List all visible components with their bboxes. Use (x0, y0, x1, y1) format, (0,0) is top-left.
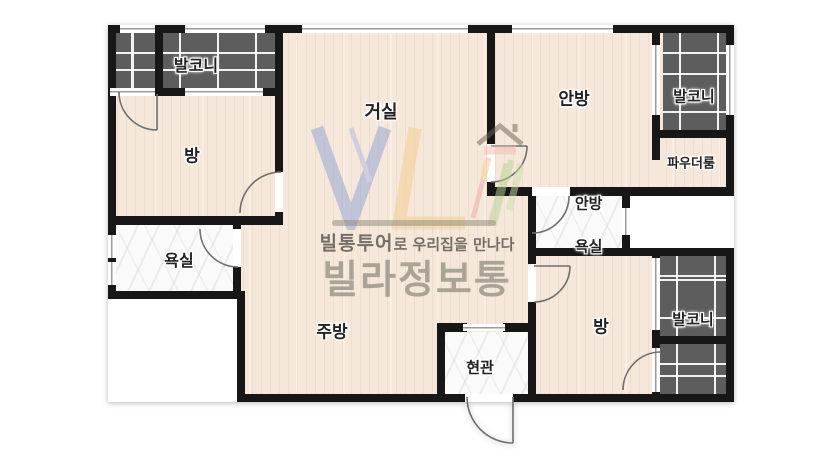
window (652, 258, 660, 330)
label-room-bottom-right: 방 (593, 313, 609, 338)
label-master-bedroom: 안방 (558, 85, 589, 110)
window (652, 348, 660, 392)
door-opening (528, 264, 536, 302)
wall-segment (437, 323, 445, 402)
outside-area (630, 196, 734, 248)
label-entry: 현관 (466, 357, 494, 378)
wall-segment (726, 248, 734, 402)
label-bathroom: 욕실 (164, 247, 193, 271)
window (512, 25, 613, 33)
balcony-top-left-cell1 (116, 33, 155, 88)
door-opening (487, 144, 495, 182)
window (726, 45, 734, 115)
label-powder-room: 파우더룸 (667, 153, 715, 172)
door-opening (275, 172, 283, 212)
wall-segment (108, 291, 245, 299)
label-balcony-bottom-right: 발코니 (672, 309, 713, 330)
wall-segment (108, 216, 283, 225)
window (108, 235, 116, 258)
outside-area (108, 299, 237, 402)
powder-room-passage (652, 160, 660, 187)
label-room-left: 방 (184, 142, 200, 167)
label-living-room: 거실 (364, 98, 397, 124)
label-master-bathroom-line1: 안방 (575, 194, 603, 212)
window (185, 88, 263, 96)
balcony-bottom-right-cell2 (660, 344, 726, 394)
window (110, 88, 155, 96)
label-balcony-top-right: 발코니 (673, 86, 714, 107)
window (108, 262, 116, 285)
window (120, 25, 155, 33)
door-opening (233, 229, 241, 267)
entry-threshold (463, 324, 505, 331)
floor-plan-canvas: 발코니 방 거실 안방 발코니 파우더룸 안방 욕실 욕실 주방 현관 방 발코… (0, 0, 840, 472)
label-master-bathroom: 안방 욕실 (544, 172, 603, 281)
label-master-bathroom-line2: 욕실 (575, 238, 603, 256)
wall-segment (487, 187, 734, 196)
window (185, 25, 265, 33)
window (652, 45, 660, 115)
label-balcony-top-left: 발코니 (174, 52, 218, 76)
label-kitchen: 주방 (316, 318, 347, 343)
wall-segment (155, 25, 163, 96)
wall-segment (652, 336, 734, 344)
floor-plan: 발코니 방 거실 안방 발코니 파우더룸 안방 욕실 욕실 주방 현관 방 발코… (0, 0, 840, 472)
entry-door-opening (465, 394, 513, 402)
wall-segment (237, 291, 245, 402)
wall-segment (503, 323, 536, 332)
window (302, 25, 468, 33)
door-arc (467, 397, 513, 443)
balcony-top-right (663, 33, 726, 130)
wall-segment (652, 130, 734, 138)
window (622, 208, 630, 235)
